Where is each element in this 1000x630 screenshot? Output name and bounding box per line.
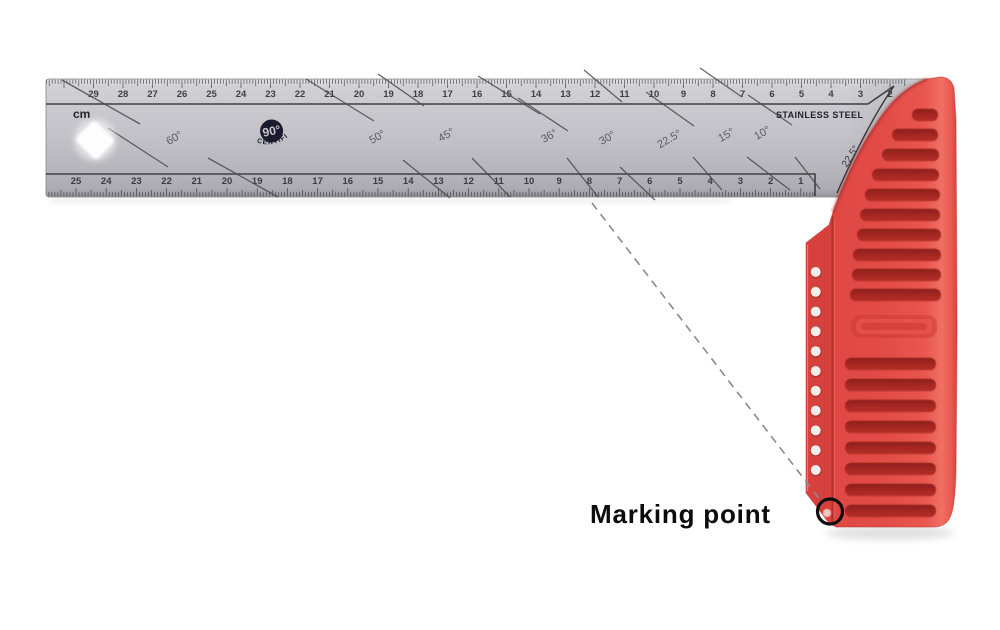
svg-text:9: 9 — [557, 176, 562, 187]
svg-text:13: 13 — [560, 89, 571, 100]
svg-text:25: 25 — [206, 89, 217, 100]
svg-text:24: 24 — [101, 176, 112, 187]
svg-text:4: 4 — [828, 89, 834, 100]
svg-text:27: 27 — [147, 89, 158, 100]
svg-text:9: 9 — [681, 89, 686, 100]
svg-text:3: 3 — [858, 89, 863, 100]
svg-text:15: 15 — [373, 176, 384, 187]
svg-text:17: 17 — [442, 89, 453, 100]
diagram-canvas: 22.5° 2928272625242322212019181716151413… — [0, 0, 1000, 630]
ruler-blade: 22.5° 2928272625242322212019181716151413… — [46, 68, 940, 200]
svg-text:7: 7 — [617, 176, 622, 187]
svg-text:14: 14 — [403, 176, 414, 187]
handle-shadow — [826, 527, 954, 540]
svg-text:10: 10 — [524, 176, 535, 187]
svg-text:3: 3 — [738, 176, 743, 187]
svg-text:18: 18 — [413, 89, 424, 100]
material-label: STAINLESS STEEL — [776, 110, 863, 120]
svg-text:22: 22 — [161, 176, 172, 187]
svg-text:20: 20 — [222, 176, 233, 187]
svg-text:18: 18 — [282, 176, 293, 187]
handle-emboss — [851, 315, 937, 338]
svg-text:7: 7 — [740, 89, 745, 100]
svg-text:17: 17 — [312, 176, 323, 187]
marking-point-label: Marking point — [590, 499, 771, 529]
svg-text:6: 6 — [647, 176, 652, 187]
svg-text:5: 5 — [799, 89, 805, 100]
svg-text:23: 23 — [265, 89, 276, 100]
svg-text:19: 19 — [383, 89, 394, 100]
svg-text:16: 16 — [343, 176, 354, 187]
try-square-product-diagram: 22.5° 2928272625242322212019181716151413… — [0, 0, 1000, 630]
svg-text:12: 12 — [590, 89, 601, 100]
svg-text:14: 14 — [531, 89, 542, 100]
svg-text:1: 1 — [798, 176, 804, 187]
annotation: Marking point — [590, 203, 843, 529]
svg-text:21: 21 — [192, 176, 203, 187]
svg-text:25: 25 — [71, 176, 82, 187]
svg-text:2: 2 — [887, 89, 892, 100]
marking-point-leader — [592, 203, 821, 501]
marking-point-notch — [823, 509, 831, 517]
svg-text:5: 5 — [677, 176, 683, 187]
svg-text:22: 22 — [295, 89, 306, 100]
svg-text:28: 28 — [118, 89, 129, 100]
svg-text:23: 23 — [131, 176, 142, 187]
svg-text:26: 26 — [177, 89, 188, 100]
svg-text:12: 12 — [463, 176, 474, 187]
svg-text:8: 8 — [710, 89, 715, 100]
svg-text:6: 6 — [769, 89, 774, 100]
svg-text:20: 20 — [354, 89, 365, 100]
blade-shadow — [50, 198, 730, 203]
unit-label: cm — [73, 107, 90, 121]
svg-text:16: 16 — [472, 89, 483, 100]
svg-text:2: 2 — [768, 176, 773, 187]
svg-text:11: 11 — [619, 89, 630, 100]
svg-text:24: 24 — [236, 89, 247, 100]
